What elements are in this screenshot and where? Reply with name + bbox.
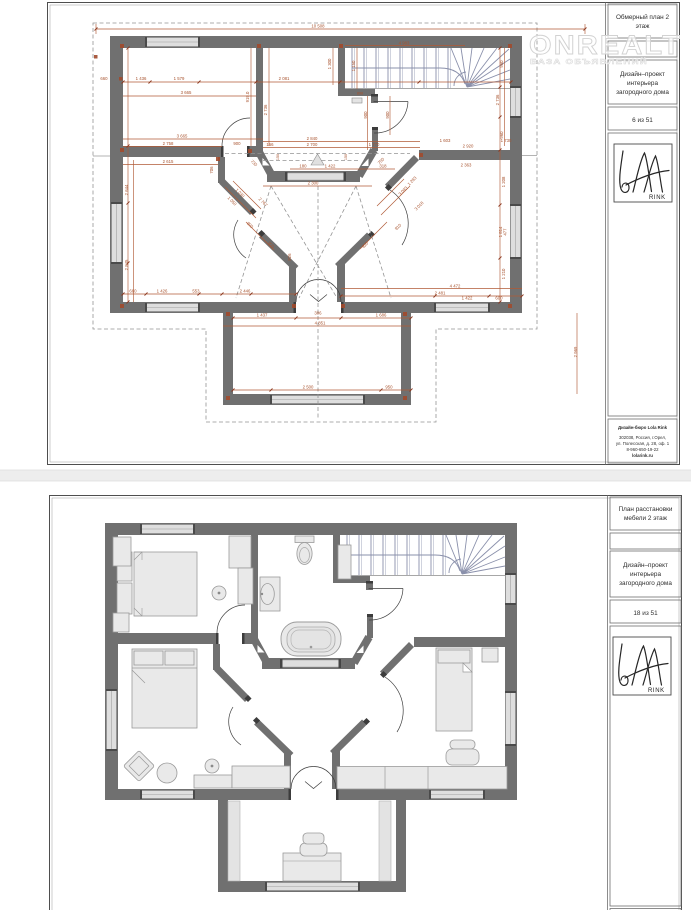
svg-text:2 700: 2 700 [307, 142, 318, 147]
svg-text:2 736: 2 736 [263, 104, 268, 115]
svg-text:2 969: 2 969 [573, 346, 578, 357]
svg-text:1 436: 1 436 [136, 76, 147, 81]
svg-text:960: 960 [499, 60, 504, 68]
svg-text:1 579: 1 579 [174, 76, 185, 81]
svg-text:2 500: 2 500 [303, 385, 314, 390]
svg-text:загородного дома: загородного дома [616, 89, 669, 96]
svg-text:RINK: RINK [649, 195, 666, 201]
svg-text:826: 826 [287, 253, 292, 261]
svg-text:660: 660 [100, 76, 108, 81]
svg-text:Обмерный план 2: Обмерный план 2 [616, 13, 670, 21]
svg-text:2 615: 2 615 [163, 159, 174, 164]
svg-text:600: 600 [495, 296, 503, 301]
svg-text:150: 150 [276, 154, 280, 160]
svg-text:1 603: 1 603 [440, 138, 451, 143]
svg-text:интерьера: интерьера [627, 80, 659, 87]
svg-text:180: 180 [299, 164, 307, 169]
svg-text:1 686: 1 686 [376, 313, 387, 318]
svg-text:1 210: 1 210 [501, 268, 506, 279]
svg-text:900: 900 [385, 111, 390, 119]
svg-text:950: 950 [385, 385, 393, 390]
svg-text:2 736: 2 736 [495, 94, 500, 105]
svg-text:Дизайн–проект: Дизайн–проект [623, 561, 668, 569]
svg-text:900: 900 [233, 141, 241, 146]
svg-text:ONREALT: ONREALT [529, 30, 682, 60]
svg-text:306: 306 [314, 311, 322, 316]
svg-text:2 300: 2 300 [308, 181, 319, 186]
svg-text:2 845: 2 845 [124, 259, 129, 270]
svg-text:2 920: 2 920 [463, 144, 474, 149]
svg-text:загородного дома: загородного дома [619, 580, 672, 587]
svg-text:166: 166 [266, 142, 274, 147]
svg-text:477: 477 [503, 228, 508, 236]
svg-text:8-960-650-19-22: 8-960-650-19-22 [626, 447, 659, 452]
svg-text:898: 898 [357, 92, 363, 96]
svg-text:302038, Россия, г.Орел,: 302038, Россия, г.Орел, [619, 435, 666, 440]
svg-text:Дизайн-бюро Lola Rink: Дизайн-бюро Lola Rink [618, 425, 668, 430]
svg-text:ул. Полесская, д. 28, оф. 1: ул. Полесская, д. 28, оф. 1 [616, 441, 670, 446]
svg-text:интерьера: интерьера [630, 571, 662, 578]
svg-text:RINK: RINK [648, 688, 665, 694]
svg-text:мебели 2 этаж: мебели 2 этаж [624, 514, 668, 522]
svg-text:660: 660 [129, 289, 137, 294]
svg-text:БАЗА ОБЪЯВЛЕНИЙ: БАЗА ОБЪЯВЛЕНИЙ [530, 57, 648, 66]
svg-text:3 665: 3 665 [177, 134, 188, 139]
svg-text:4 983: 4 983 [399, 41, 410, 46]
svg-text:1 426: 1 426 [157, 289, 168, 294]
svg-text:553: 553 [192, 289, 200, 294]
svg-text:706: 706 [209, 166, 214, 174]
svg-text:1 422: 1 422 [325, 164, 336, 169]
svg-text:1 422: 1 422 [462, 296, 473, 301]
svg-text:150: 150 [344, 154, 348, 160]
svg-text:2 363: 2 363 [461, 163, 472, 168]
svg-text:1 437: 1 437 [257, 313, 268, 318]
svg-text:2 081: 2 081 [279, 76, 290, 81]
svg-text:900: 900 [363, 111, 368, 119]
svg-text:2 446: 2 446 [240, 289, 251, 294]
svg-text:2 481: 2 481 [435, 291, 446, 296]
svg-text:960: 960 [499, 131, 504, 139]
svg-text:2 840: 2 840 [307, 136, 318, 141]
svg-text:10 508: 10 508 [311, 24, 325, 29]
svg-text:1 300: 1 300 [327, 58, 332, 69]
svg-text:919.0: 919.0 [245, 91, 250, 102]
svg-text:1 208: 1 208 [501, 176, 506, 187]
svg-text:4 851: 4 851 [315, 321, 326, 326]
svg-text:Дизайн–проект: Дизайн–проект [620, 70, 665, 78]
svg-text:План расстановки: План расстановки [619, 506, 673, 513]
svg-text:2 644: 2 644 [124, 184, 129, 195]
svg-text:lolarink.ru: lolarink.ru [632, 453, 653, 458]
svg-text:4 472: 4 472 [450, 284, 461, 289]
svg-text:6 из 51: 6 из 51 [632, 117, 653, 124]
svg-text:18 из 51: 18 из 51 [633, 610, 658, 617]
svg-text:этаж: этаж [636, 23, 651, 30]
svg-text:2 758: 2 758 [163, 141, 174, 146]
svg-text:1 150: 1 150 [351, 60, 356, 71]
svg-text:3 665: 3 665 [181, 90, 192, 95]
svg-text:1 770: 1 770 [369, 142, 380, 147]
